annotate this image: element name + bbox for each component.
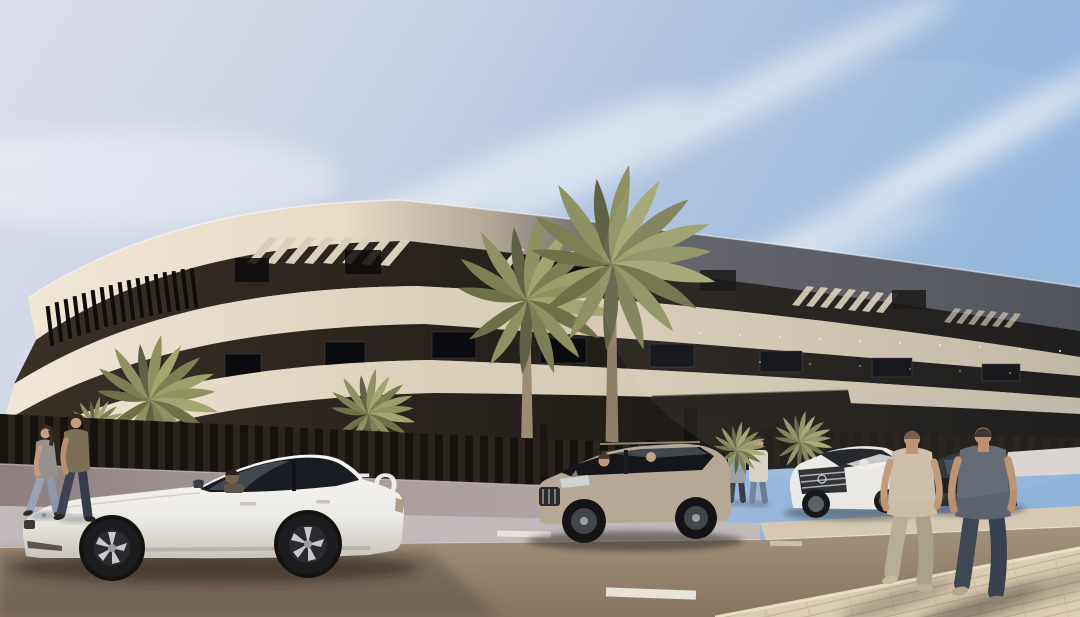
architectural-render: TO	[0, 0, 1080, 617]
side-mirror	[193, 480, 204, 489]
render-scene: TO	[0, 0, 1080, 617]
occupant-head	[646, 452, 656, 462]
gate-post	[540, 424, 547, 476]
